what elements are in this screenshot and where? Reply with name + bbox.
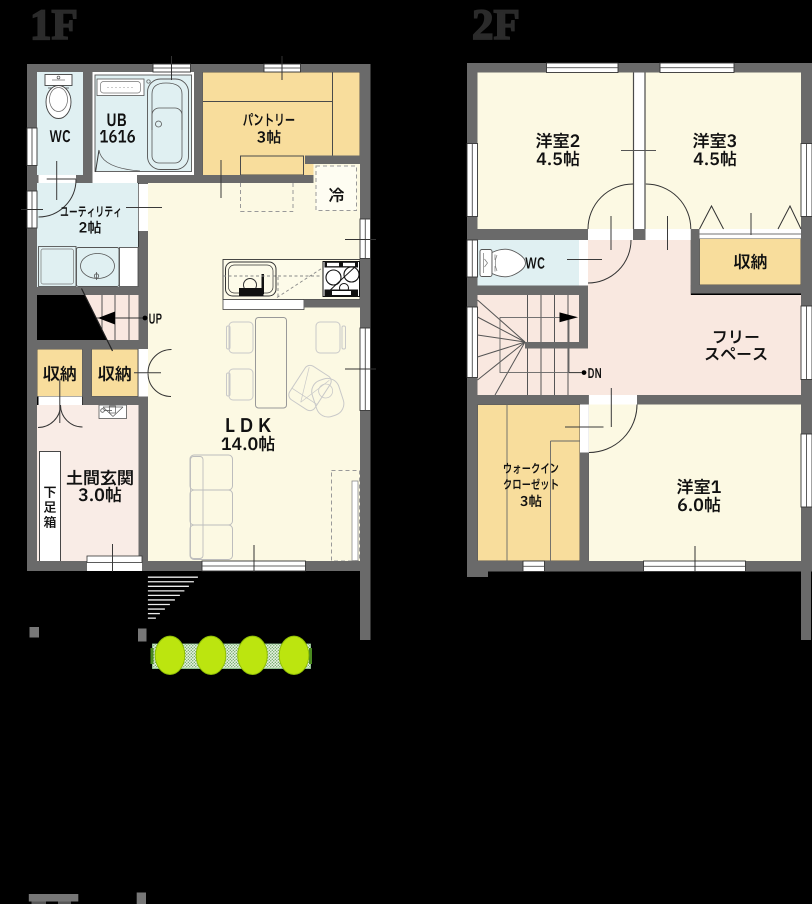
- svg-text:1F: 1F: [30, 2, 78, 49]
- svg-text:2F: 2F: [472, 2, 520, 49]
